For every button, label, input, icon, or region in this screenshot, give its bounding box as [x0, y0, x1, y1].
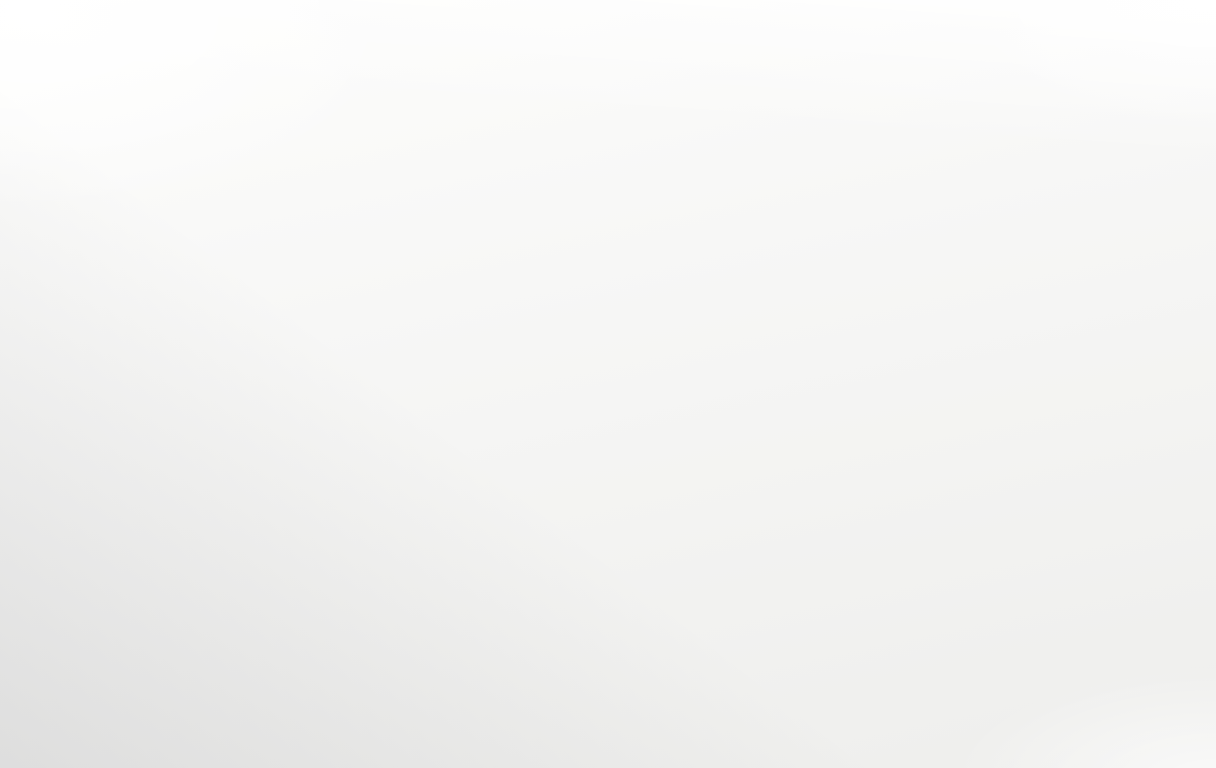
- map-scene-blur-heavy: [0, 0, 1216, 768]
- map-photo: [0, 0, 1216, 768]
